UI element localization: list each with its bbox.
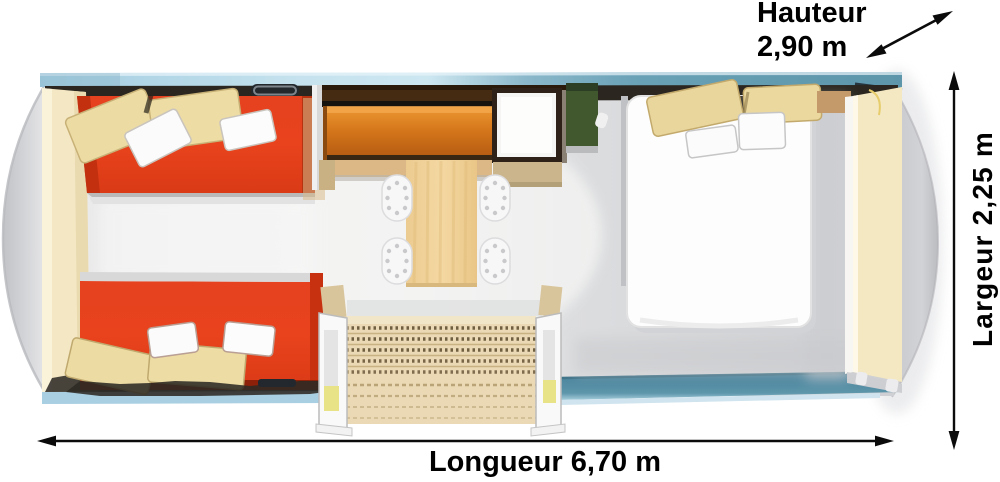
- svg-text:Longueur 6,70 m: Longueur 6,70 m: [429, 446, 661, 478]
- svg-text:2,90 m: 2,90 m: [757, 31, 847, 63]
- svg-text:Hauteur: Hauteur: [757, 0, 867, 29]
- svg-text:Largeur 2,25 m: Largeur 2,25 m: [967, 131, 998, 347]
